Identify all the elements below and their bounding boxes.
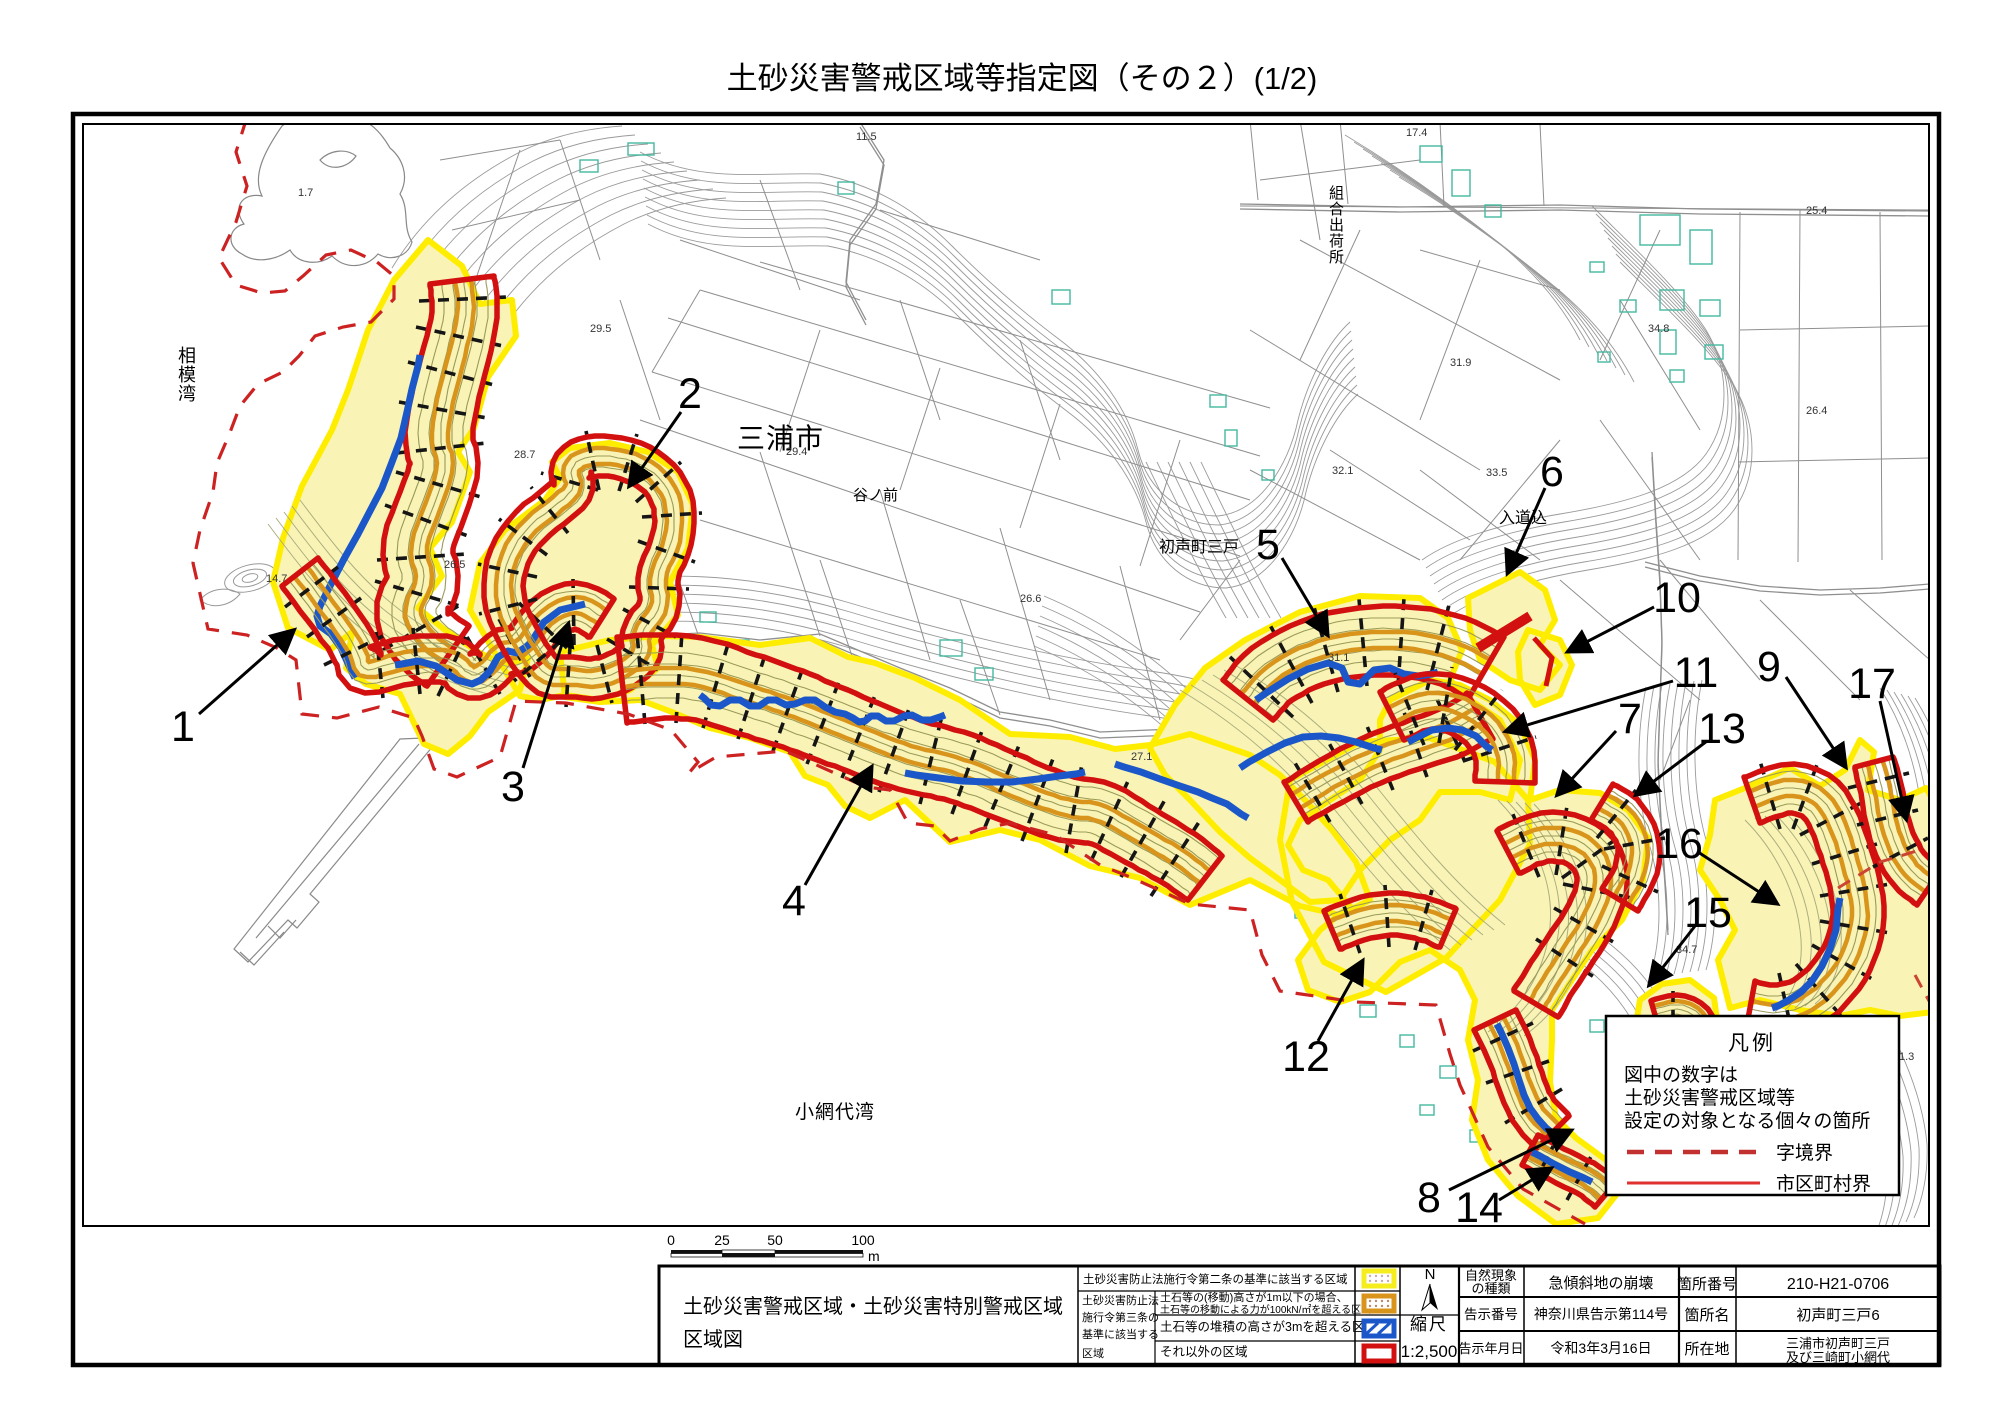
svg-text:三浦市: 三浦市 xyxy=(737,423,824,454)
svg-text:28.7: 28.7 xyxy=(514,449,535,461)
svg-text:土石等の移動による力が100kN/㎡を超える区域: 土石等の移動による力が100kN/㎡を超える区域 xyxy=(1160,1303,1371,1316)
svg-text:谷ノ前: 谷ノ前 xyxy=(853,487,898,504)
svg-text:16: 16 xyxy=(1655,820,1703,868)
svg-text:三浦市初声町三戸: 三浦市初声町三戸 xyxy=(1786,1336,1890,1351)
svg-text:31.9: 31.9 xyxy=(1450,357,1471,369)
svg-text:凡例: 凡例 xyxy=(1728,1032,1776,1055)
svg-text:1.3: 1.3 xyxy=(1899,1051,1914,1063)
svg-text:32.1: 32.1 xyxy=(1332,465,1353,477)
svg-text:区域: 区域 xyxy=(1082,1347,1104,1360)
svg-text:31.1: 31.1 xyxy=(1328,652,1349,664)
svg-text:土石等の堆積の高さが3mを超える区域: 土石等の堆積の高さが3mを超える区域 xyxy=(1160,1319,1377,1334)
svg-text:模: 模 xyxy=(178,365,196,385)
svg-text:土砂災害防止法施行令第二条の基準に該当する区域: 土砂災害防止法施行令第二条の基準に該当する区域 xyxy=(1083,1272,1348,1286)
svg-text:合: 合 xyxy=(1329,201,1344,218)
svg-text:3: 3 xyxy=(501,763,525,811)
svg-text:施行令第三条の: 施行令第三条の xyxy=(1082,1310,1159,1324)
svg-text:29.4: 29.4 xyxy=(786,446,807,458)
svg-text:34.8: 34.8 xyxy=(1648,323,1669,335)
svg-text:土砂災害警戒区域等: 土砂災害警戒区域等 xyxy=(1624,1087,1795,1109)
svg-text:26.6: 26.6 xyxy=(1020,593,1041,605)
svg-text:14: 14 xyxy=(1455,1184,1503,1232)
svg-text:10: 10 xyxy=(1653,574,1701,622)
svg-text:2: 2 xyxy=(678,370,702,418)
svg-text:縮尺: 縮尺 xyxy=(1410,1315,1448,1334)
svg-text:出: 出 xyxy=(1329,217,1344,234)
svg-text:1: 1 xyxy=(171,703,195,751)
svg-text:13: 13 xyxy=(1698,705,1746,753)
svg-text:26.4: 26.4 xyxy=(1806,405,1827,417)
svg-text:12: 12 xyxy=(1282,1033,1330,1081)
svg-text:の種類: の種類 xyxy=(1471,1281,1510,1296)
svg-text:m: m xyxy=(868,1248,880,1264)
svg-text:小網代湾: 小網代湾 xyxy=(795,1101,875,1123)
svg-text:17.4: 17.4 xyxy=(1406,127,1427,139)
svg-text:1:2,500: 1:2,500 xyxy=(1401,1342,1458,1361)
svg-text:土砂災害警戒区域等指定図（その２）(1/2): 土砂災害警戒区域等指定図（その２）(1/2) xyxy=(727,61,1318,96)
svg-text:神奈川県告示第114号: 神奈川県告示第114号 xyxy=(1534,1306,1668,1322)
svg-text:7: 7 xyxy=(1618,695,1642,743)
svg-text:0: 0 xyxy=(667,1232,675,1248)
svg-text:初声町三戸6: 初声町三戸6 xyxy=(1796,1306,1879,1324)
svg-text:入道込: 入道込 xyxy=(1499,509,1547,527)
svg-text:27.1: 27.1 xyxy=(1131,751,1152,763)
svg-text:初声町三戸: 初声町三戸 xyxy=(1159,538,1239,556)
svg-text:湾: 湾 xyxy=(178,384,196,404)
svg-text:設定の対象となる個々の箇所: 設定の対象となる個々の箇所 xyxy=(1624,1110,1870,1132)
svg-text:8: 8 xyxy=(1417,1174,1441,1222)
svg-text:告示年月日: 告示年月日 xyxy=(1458,1341,1523,1356)
svg-text:14.7: 14.7 xyxy=(266,573,287,585)
svg-text:100: 100 xyxy=(851,1232,875,1248)
svg-text:箇所番号: 箇所番号 xyxy=(1677,1276,1737,1293)
svg-text:29.5: 29.5 xyxy=(590,323,611,335)
svg-text:33.5: 33.5 xyxy=(1486,467,1507,479)
svg-text:基準に該当する: 基準に該当する xyxy=(1082,1327,1159,1341)
svg-text:所在地: 所在地 xyxy=(1684,1341,1729,1358)
svg-text:50: 50 xyxy=(767,1232,783,1248)
svg-text:令和3年3月16日: 令和3年3月16日 xyxy=(1550,1340,1651,1356)
svg-text:箇所名: 箇所名 xyxy=(1684,1307,1729,1324)
svg-text:210-H21-0706: 210-H21-0706 xyxy=(1787,1276,1889,1293)
svg-text:N: N xyxy=(1425,1266,1436,1283)
svg-text:土石等の(移動)高さが1m以下の場合、: 土石等の(移動)高さが1m以下の場合、 xyxy=(1160,1290,1348,1304)
svg-text:市区町村界: 市区町村界 xyxy=(1776,1173,1871,1195)
svg-text:1.7: 1.7 xyxy=(298,187,313,199)
svg-text:字境界: 字境界 xyxy=(1776,1142,1833,1164)
svg-text:告示番号: 告示番号 xyxy=(1464,1307,1518,1322)
svg-text:及び三崎町小網代: 及び三崎町小網代 xyxy=(1786,1350,1890,1365)
svg-text:図中の数字は: 図中の数字は xyxy=(1624,1064,1738,1086)
svg-text:11.5: 11.5 xyxy=(856,131,877,143)
svg-text:26.5: 26.5 xyxy=(444,559,465,571)
svg-text:荷: 荷 xyxy=(1329,233,1344,250)
svg-text:5: 5 xyxy=(1256,521,1280,569)
svg-text:所: 所 xyxy=(1329,249,1344,266)
svg-text:土砂災害防止法: 土砂災害防止法 xyxy=(1082,1293,1159,1307)
svg-text:組: 組 xyxy=(1329,185,1344,202)
svg-text:土砂災害警戒区域・土砂災害特別警戒区域: 土砂災害警戒区域・土砂災害特別警戒区域 xyxy=(683,1295,1063,1318)
svg-text:25.4: 25.4 xyxy=(1806,205,1827,217)
svg-text:25: 25 xyxy=(714,1232,730,1248)
svg-text:それ以外の区域: それ以外の区域 xyxy=(1160,1345,1248,1359)
svg-text:17: 17 xyxy=(1848,660,1896,708)
svg-text:区域図: 区域図 xyxy=(683,1328,743,1351)
svg-text:11: 11 xyxy=(1674,649,1719,697)
svg-text:相: 相 xyxy=(178,346,196,366)
svg-text:4: 4 xyxy=(782,877,806,925)
svg-text:急傾斜地の崩壊: 急傾斜地の崩壊 xyxy=(1548,1275,1653,1292)
svg-text:9: 9 xyxy=(1757,643,1781,691)
